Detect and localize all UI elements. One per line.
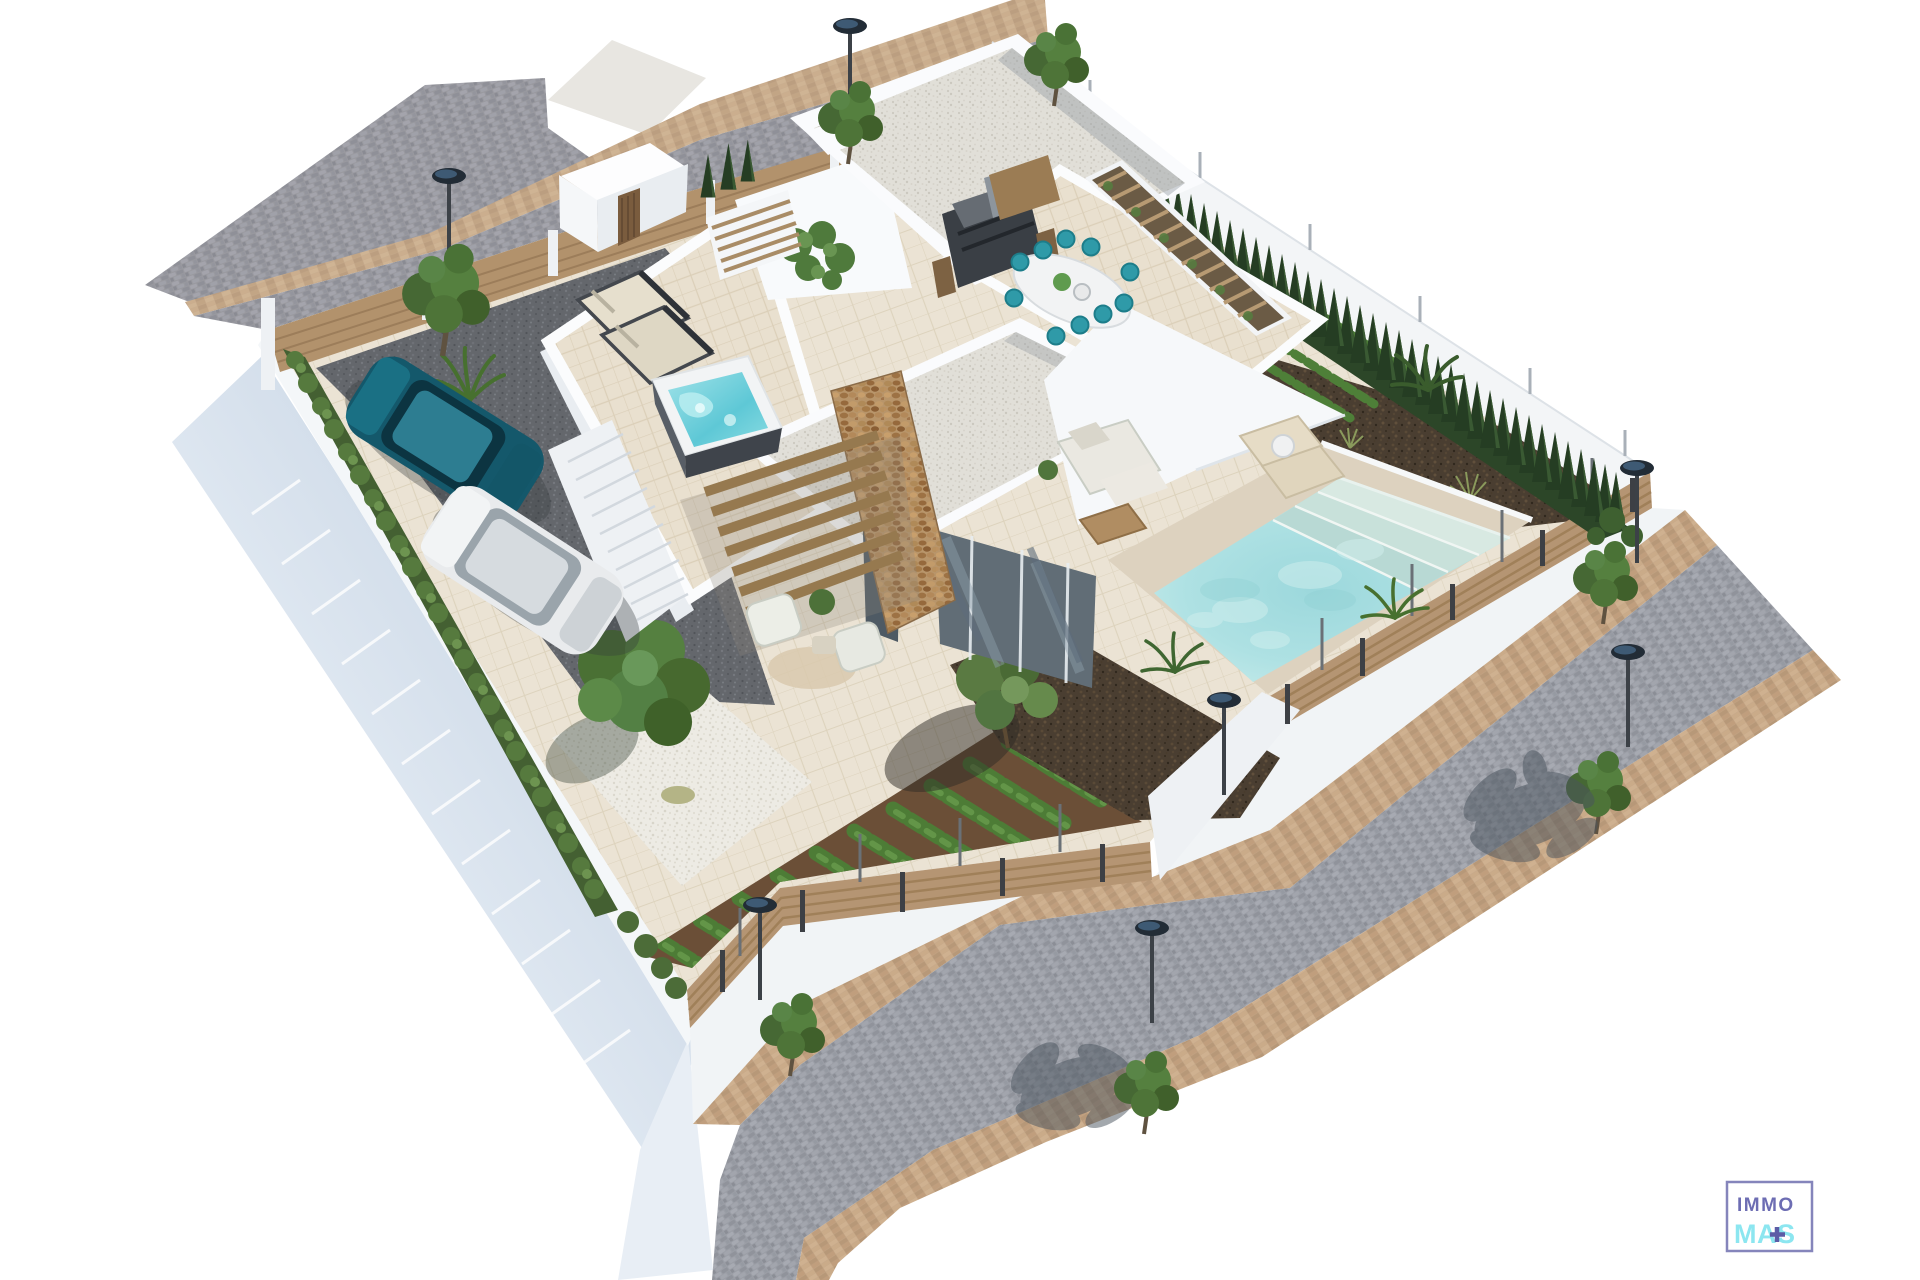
svg-text:IMMO: IMMO [1737, 1195, 1795, 1216]
svg-text:MAS: MAS [1734, 1219, 1796, 1249]
